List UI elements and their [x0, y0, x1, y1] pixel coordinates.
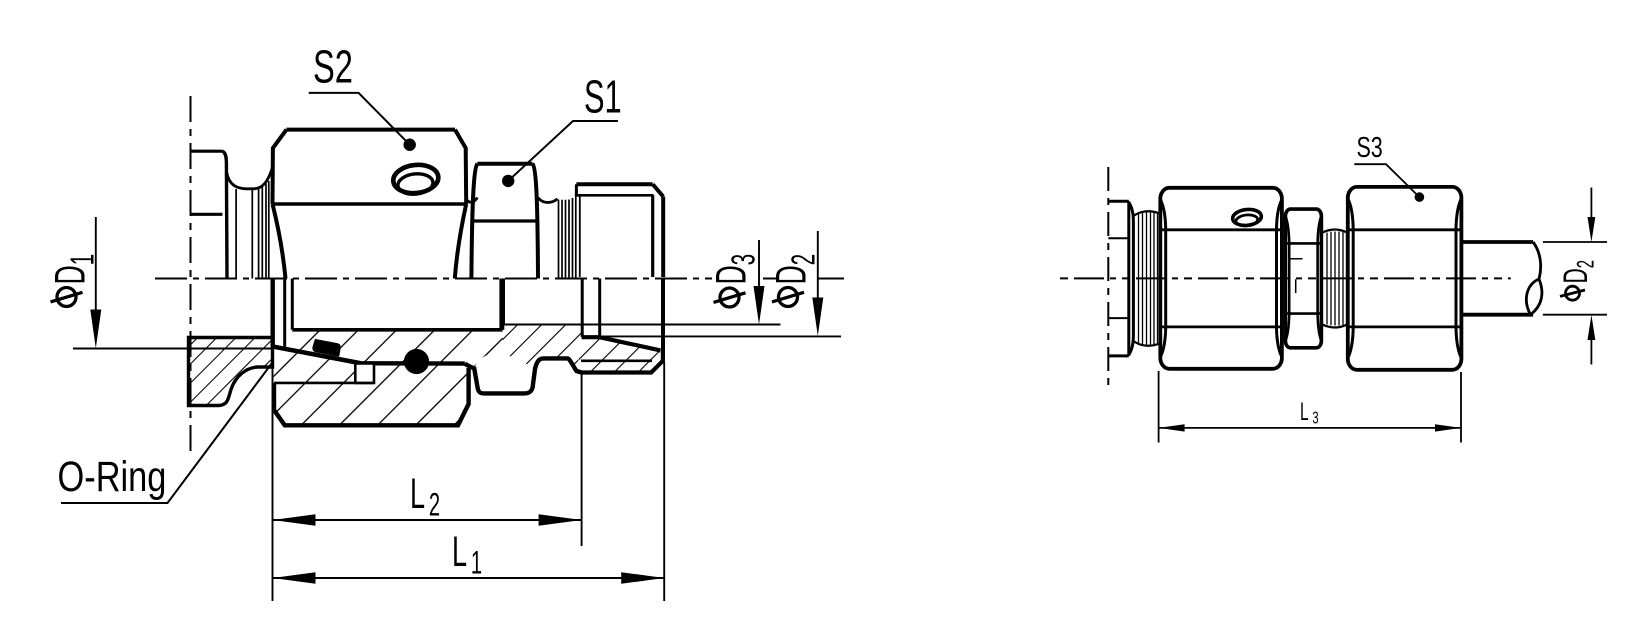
svg-text:S1: S1: [584, 72, 622, 123]
svg-text:S3: S3: [1357, 132, 1383, 164]
svg-text:O-Ring: O-Ring: [58, 453, 167, 500]
svg-text:D1: D1: [46, 254, 101, 285]
svg-text:L3: L3: [1300, 398, 1319, 428]
svg-text:L1: L1: [452, 527, 482, 581]
svg-text:S2: S2: [313, 42, 353, 93]
svg-text:L2: L2: [410, 469, 440, 523]
svg-text:D3: D3: [707, 254, 762, 285]
svg-text:D2: D2: [1556, 260, 1600, 283]
svg-text:D2: D2: [767, 254, 822, 285]
